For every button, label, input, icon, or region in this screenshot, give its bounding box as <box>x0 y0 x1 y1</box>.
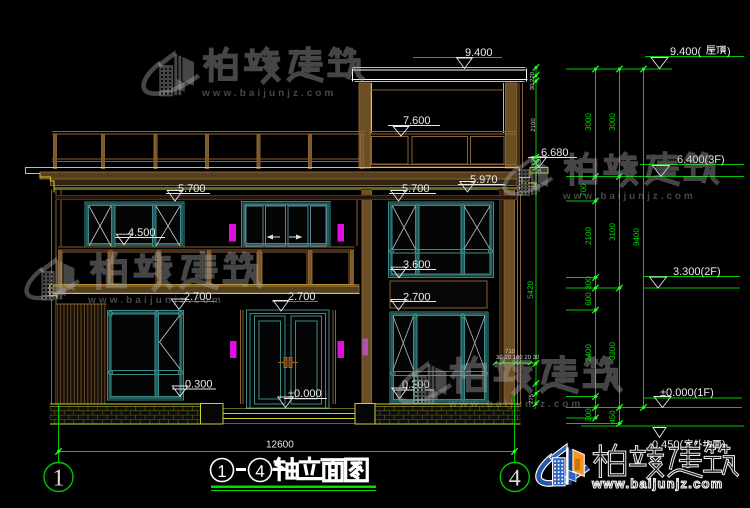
svg-text:3000: 3000 <box>608 113 617 131</box>
svg-text:4: 4 <box>255 462 264 481</box>
svg-text:600: 600 <box>584 292 593 306</box>
svg-text:710: 710 <box>505 348 516 355</box>
svg-text:9400: 9400 <box>632 228 641 246</box>
svg-text:3000: 3000 <box>584 113 593 131</box>
svg-text:): ) <box>727 46 731 58</box>
svg-text:www.baijunjz.com: www.baijunjz.com <box>87 295 224 306</box>
svg-text:www.baijunjz.com: www.baijunjz.com <box>562 191 696 202</box>
svg-text:30: 30 <box>529 83 536 90</box>
svg-text:220: 220 <box>529 71 536 82</box>
svg-text:300: 300 <box>584 276 593 290</box>
svg-text:4: 4 <box>509 466 521 492</box>
svg-text:5420: 5420 <box>526 281 535 299</box>
svg-text:1: 1 <box>53 466 65 492</box>
svg-text:9.400(: 9.400( <box>670 46 702 58</box>
svg-text:2100: 2100 <box>584 227 593 245</box>
svg-text:450: 450 <box>608 410 617 424</box>
svg-text:12600: 12600 <box>266 440 294 451</box>
svg-text:3.300(2F): 3.300(2F) <box>673 266 721 278</box>
svg-text:2100: 2100 <box>530 118 537 132</box>
svg-text:www.baijunjz.com: www.baijunjz.com <box>448 399 583 410</box>
svg-text:±0.000(1F): ±0.000(1F) <box>660 387 714 399</box>
svg-text:www.baijunjz.com: www.baijunjz.com <box>201 88 336 99</box>
svg-text:1: 1 <box>217 462 226 481</box>
svg-text:30: 30 <box>536 156 543 163</box>
svg-text:3100: 3100 <box>608 223 617 241</box>
svg-text:300: 300 <box>584 408 593 422</box>
svg-text:www.baijunjz.com: www.baijunjz.com <box>591 476 723 491</box>
